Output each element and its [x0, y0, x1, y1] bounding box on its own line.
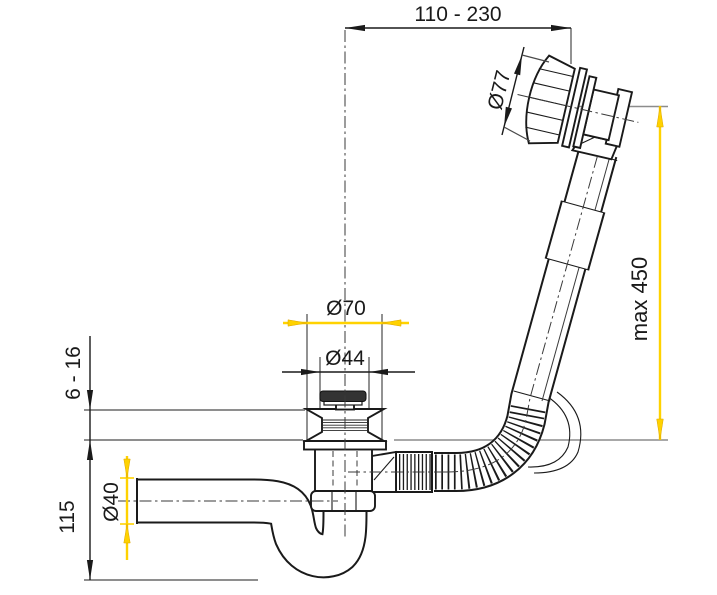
dim-outlet-diameter: Ø40	[100, 456, 134, 560]
dim-label-horizontal-reach: 110 - 230	[414, 3, 501, 26]
dim-horizontal-reach: 110 - 230	[345, 3, 571, 31]
arrow-left	[345, 25, 365, 31]
arrow-top	[514, 55, 522, 75]
drain-body	[315, 449, 372, 491]
arrow-top	[124, 459, 130, 478]
arrow-left	[288, 320, 307, 326]
arrow-right	[551, 25, 571, 31]
arrow-rim-bottom	[87, 440, 93, 460]
arrow-bottom	[657, 419, 664, 440]
p-trap-pipe	[137, 478, 345, 556]
drain-assembly	[304, 391, 432, 511]
arrow-bottom	[124, 524, 130, 543]
arrow-left	[301, 369, 320, 375]
dim-flange-diameter: Ø70	[283, 297, 409, 326]
dim-label-max-height: max 450	[627, 257, 652, 341]
arrow-right	[369, 369, 388, 375]
dim-rim-thickness-and-trap-height: 6 - 16 115	[56, 336, 93, 580]
technical-drawing-canvas: 110 - 230 Ø77 max 450 Ø70 Ø44 6 - 16	[0, 0, 717, 595]
arrow-right	[382, 320, 401, 326]
dim-label-rim-thickness: 6 - 16	[62, 346, 85, 400]
dim-label-outlet-diameter: Ø40	[100, 482, 123, 522]
arrow-trap-bottom	[87, 560, 93, 580]
plug-cap	[320, 391, 366, 402]
dim-label-flange-diameter: Ø70	[326, 297, 366, 320]
bath-waste-drawing: 110 - 230 Ø77 max 450 Ø70 Ø44 6 - 16	[0, 0, 717, 595]
dim-plug-diameter: Ø44	[282, 347, 415, 375]
dim-max-height: max 450	[627, 106, 663, 440]
overflow-conduit	[434, 149, 617, 473]
dim-label-knob-diameter: Ø77	[484, 68, 516, 112]
overflow-knob-assembly	[507, 51, 648, 167]
ext-tick-top	[522, 55, 549, 62]
arrow-top	[657, 106, 664, 127]
arrow-rim-top	[87, 390, 93, 410]
dim-label-trap-height: 115	[56, 500, 79, 533]
dim-label-plug-diameter: Ø44	[325, 347, 365, 370]
